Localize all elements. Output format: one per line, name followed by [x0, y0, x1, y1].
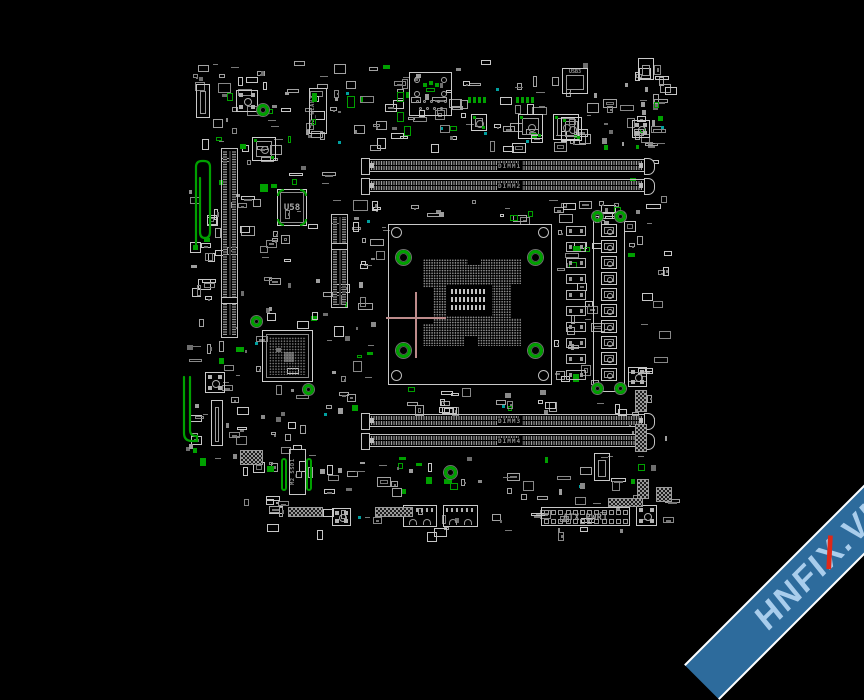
small-component	[201, 243, 211, 248]
pad	[239, 93, 243, 97]
small-component	[218, 83, 231, 94]
part	[274, 466, 276, 469]
small-component	[505, 393, 511, 398]
small-component	[284, 259, 290, 262]
cap-pad	[475, 305, 477, 310]
small-component	[244, 499, 249, 506]
small-component	[233, 454, 236, 459]
front-panel-header[interactable]	[375, 507, 413, 517]
part	[274, 435, 276, 437]
small-component	[654, 65, 661, 75]
small-component	[365, 517, 371, 518]
box-inner	[200, 91, 206, 114]
small-component	[472, 200, 476, 204]
part	[466, 84, 468, 86]
small-component	[266, 240, 277, 248]
part	[256, 465, 261, 469]
small-component	[266, 499, 274, 505]
small-component	[427, 213, 440, 217]
part	[244, 199, 252, 201]
small-component	[240, 226, 250, 232]
part	[627, 224, 633, 229]
small-component	[507, 401, 513, 409]
small-component	[439, 407, 450, 413]
small-component	[205, 296, 212, 299]
part	[196, 77, 198, 79]
small-component	[236, 375, 241, 376]
small-component	[267, 524, 279, 532]
vrm-mosfet	[566, 274, 586, 284]
small-component	[358, 516, 361, 519]
small-component	[193, 448, 197, 454]
pad-square	[628, 367, 647, 387]
cap-pad	[471, 305, 473, 310]
small-component	[370, 239, 384, 246]
ic-chip[interactable]	[518, 114, 543, 139]
small-component	[360, 297, 366, 307]
small-component	[587, 103, 599, 113]
small-component	[322, 183, 330, 184]
small-component	[469, 83, 481, 86]
small-component	[353, 361, 362, 372]
choke-coil	[607, 293, 613, 299]
small-component	[359, 282, 362, 287]
small-component	[559, 214, 573, 223]
small-component	[622, 142, 624, 146]
m2-ssd-slot[interactable]: M2_SSD1	[289, 449, 306, 495]
highlight-pads	[516, 97, 534, 103]
pin-col	[232, 151, 236, 335]
pcie-x4-slot[interactable]	[331, 214, 348, 308]
cap-pad	[483, 297, 485, 302]
connector-label: ATX PWR1	[542, 513, 629, 523]
slot-end	[370, 183, 374, 188]
vrm-mosfet	[566, 258, 586, 268]
part	[497, 127, 499, 129]
small-component	[245, 350, 248, 353]
pad	[335, 511, 339, 515]
small-component	[281, 235, 289, 244]
small-component	[484, 132, 487, 135]
small-component	[636, 145, 640, 149]
vrm-mount-hole	[592, 211, 603, 222]
vrm-outline[interactable]	[593, 212, 625, 392]
small-component	[631, 479, 635, 483]
small-component	[647, 223, 651, 224]
small-component	[334, 64, 346, 74]
highlight	[271, 184, 277, 188]
side-header[interactable]	[635, 424, 647, 452]
small-component	[552, 77, 560, 86]
small-component	[651, 465, 656, 470]
usb-port[interactable]	[443, 505, 478, 527]
vrm-mosfet	[566, 338, 586, 348]
vrm-choke[interactable]	[601, 336, 617, 349]
small-component	[238, 203, 247, 208]
bump	[449, 519, 457, 525]
pin-hole	[430, 100, 433, 103]
pad-square	[636, 505, 657, 526]
pad	[218, 375, 222, 379]
small-component	[327, 340, 332, 341]
dimm-slot-3[interactable]: DIMM3	[368, 414, 645, 427]
small-component	[557, 268, 564, 271]
pcie-x16-slot[interactable]	[221, 148, 238, 338]
small-component	[503, 146, 514, 152]
slot-end	[370, 438, 374, 443]
part	[276, 234, 278, 236]
cap-pad	[455, 297, 457, 302]
highlight	[193, 245, 198, 250]
small-component	[467, 457, 471, 460]
choke-coil	[607, 325, 613, 331]
mount-hole	[444, 466, 457, 479]
small-component	[261, 415, 265, 419]
small-component	[301, 166, 305, 170]
jack-hole	[441, 91, 447, 97]
small-component	[604, 123, 609, 125]
bga-core	[284, 352, 294, 362]
small-component	[190, 197, 199, 204]
slot-label: DIMM1	[497, 163, 522, 170]
small-component	[426, 477, 432, 484]
part	[269, 243, 274, 245]
ic-circle	[569, 126, 577, 134]
small-component	[335, 97, 337, 101]
small-component	[637, 236, 644, 244]
usb3-header[interactable]: USB3	[562, 68, 588, 94]
highlight	[404, 126, 411, 136]
small-component	[371, 258, 375, 260]
small-component	[451, 393, 459, 396]
dimm-slot-1[interactable]: DIMM1	[368, 159, 645, 172]
pin-notch	[511, 284, 521, 318]
highlight	[658, 116, 663, 121]
pin-hole	[440, 107, 443, 110]
small-component	[510, 215, 518, 220]
small-component	[273, 231, 278, 237]
small-component	[597, 403, 605, 404]
ic-chip[interactable]	[561, 117, 582, 141]
cap-pad	[459, 297, 461, 302]
small-component	[593, 503, 601, 504]
socket-screw-br	[538, 370, 549, 381]
small-component	[638, 464, 645, 471]
corner-mark	[520, 116, 523, 119]
small-component	[371, 322, 376, 327]
small-component	[203, 414, 208, 415]
slot-end	[370, 163, 374, 168]
small-component	[496, 400, 506, 406]
pad	[251, 105, 255, 109]
cap-pad	[467, 305, 469, 310]
m2-wlan-slot[interactable]: M2_WLAN1	[309, 88, 327, 134]
part	[666, 270, 668, 273]
part	[333, 110, 335, 112]
part	[666, 520, 671, 522]
small-component	[353, 222, 359, 231]
part	[650, 398, 652, 400]
vrm-choke[interactable]	[601, 352, 617, 365]
latch-right	[644, 178, 655, 195]
slot-label: DIMM4	[497, 438, 522, 445]
small-component	[215, 458, 222, 459]
vrm-mosfet	[566, 306, 586, 316]
small-component	[276, 502, 279, 504]
connector[interactable]	[594, 453, 610, 481]
small-component	[357, 355, 363, 359]
pad	[639, 508, 643, 512]
vrm-choke[interactable]	[601, 272, 617, 285]
small-component	[515, 105, 521, 114]
pin-hole	[419, 107, 422, 110]
highlighted-trace-bar	[184, 377, 197, 441]
small-component	[260, 184, 268, 191]
small-component	[264, 277, 271, 280]
small-component	[346, 488, 352, 491]
pad	[650, 508, 654, 512]
ic-chip[interactable]	[471, 114, 487, 131]
vrm-choke[interactable]	[601, 320, 617, 333]
part	[240, 430, 244, 432]
small-component	[332, 371, 336, 374]
part	[394, 484, 396, 486]
small-component	[587, 115, 592, 116]
jack-hole	[414, 77, 420, 83]
part	[418, 408, 421, 412]
small-component	[515, 87, 523, 88]
part	[464, 482, 466, 484]
small-component	[434, 528, 447, 536]
part	[414, 208, 416, 210]
small-component	[609, 130, 613, 134]
small-component	[236, 347, 244, 352]
cap-pad	[479, 289, 481, 294]
small-component	[202, 139, 209, 150]
choke-coil	[607, 373, 613, 379]
small-component	[397, 467, 399, 469]
pin-zigzag	[446, 508, 475, 512]
pad	[580, 277, 583, 281]
small-component	[408, 387, 414, 392]
small-component	[312, 312, 319, 320]
vrm-choke[interactable]	[601, 240, 617, 253]
part	[241, 206, 244, 208]
small-component	[599, 201, 604, 206]
small-component	[338, 408, 343, 414]
front-panel-header[interactable]	[288, 507, 323, 517]
small-component	[317, 530, 323, 540]
small-component	[461, 113, 466, 118]
highlight	[397, 112, 404, 122]
small-component	[345, 336, 350, 341]
corner-arc	[300, 219, 307, 226]
socket-mount-hole	[528, 250, 543, 265]
socket-screw-tl	[391, 227, 402, 238]
ic-circle	[261, 146, 269, 154]
pad	[569, 245, 572, 249]
small-component	[620, 105, 634, 111]
vrm-choke[interactable]	[601, 368, 617, 381]
choke-coil	[607, 261, 613, 267]
front-panel-header[interactable]	[608, 498, 643, 507]
small-component	[646, 204, 660, 209]
vrm-choke[interactable]	[601, 304, 617, 317]
part	[657, 68, 659, 72]
socket-mount-hole	[528, 343, 543, 358]
side-header[interactable]	[656, 487, 672, 502]
small-component	[645, 87, 647, 92]
highlight	[312, 93, 317, 102]
chip-u58[interactable]: U58	[277, 189, 307, 226]
small-component	[533, 76, 537, 87]
part	[397, 84, 403, 86]
small-component	[355, 130, 358, 134]
corner-arc	[277, 189, 284, 196]
small-component	[287, 89, 299, 93]
small-component	[193, 346, 201, 347]
small-component	[281, 412, 285, 416]
part	[582, 204, 589, 206]
small-component	[219, 141, 224, 142]
pad-square	[205, 372, 225, 393]
small-component	[323, 313, 329, 316]
pad	[239, 105, 243, 109]
corner-mark	[473, 116, 476, 119]
highlight	[426, 88, 435, 92]
corner-mark	[271, 156, 274, 159]
cap-pad	[467, 297, 469, 302]
corner-mark	[577, 136, 580, 139]
chip-label: U58	[278, 203, 306, 213]
pad	[580, 341, 583, 345]
small-component	[271, 126, 279, 127]
part	[606, 102, 614, 106]
cap-pad	[463, 305, 465, 310]
small-component	[456, 68, 461, 71]
dimm-slot-2[interactable]: DIMM2	[368, 179, 645, 192]
small-component	[409, 469, 413, 473]
small-component	[463, 81, 470, 85]
small-component	[528, 211, 533, 217]
small-component	[402, 489, 406, 494]
small-component	[620, 529, 623, 533]
small-component	[661, 126, 664, 129]
side-header[interactable]	[635, 390, 647, 412]
small-component	[300, 425, 306, 434]
small-component	[213, 64, 218, 65]
vrm-mosfet	[566, 370, 586, 380]
box-inner	[566, 75, 584, 90]
small-component	[213, 119, 223, 129]
vrm-choke[interactable]	[601, 288, 617, 301]
small-component	[198, 65, 210, 72]
small-component	[292, 179, 297, 186]
vrm-choke[interactable]	[601, 256, 617, 269]
small-component	[505, 208, 510, 209]
pin-hole	[426, 107, 429, 110]
small-component	[413, 117, 427, 123]
small-component	[373, 517, 382, 524]
part	[557, 210, 561, 212]
part	[234, 400, 237, 402]
pad	[208, 375, 212, 379]
small-component	[462, 388, 471, 397]
part	[668, 502, 677, 504]
connector[interactable]	[638, 58, 654, 80]
cap-pad	[479, 297, 481, 302]
small-component	[540, 390, 545, 395]
pad-square	[332, 508, 351, 526]
pad	[639, 519, 643, 523]
small-component	[241, 291, 245, 295]
small-component	[324, 413, 327, 416]
atx-power-connector[interactable]: ATX PWR1	[541, 507, 630, 526]
front-panel-header[interactable]	[240, 450, 263, 465]
part	[208, 299, 210, 301]
highlight-pads	[468, 97, 486, 103]
part	[580, 286, 583, 288]
pin-hole	[416, 100, 419, 103]
small-component	[372, 201, 377, 211]
latch-left	[361, 413, 370, 430]
audio-jack-connector[interactable]	[409, 72, 452, 116]
chipset-bga[interactable]	[262, 330, 313, 382]
corner-arc	[300, 189, 307, 196]
small-component	[240, 144, 246, 150]
vrm-choke[interactable]	[601, 224, 617, 237]
small-component	[263, 82, 267, 91]
small-component	[653, 301, 663, 308]
dimm-slot-4[interactable]: DIMM4	[368, 434, 645, 447]
key-notch	[332, 243, 347, 250]
part	[380, 480, 388, 484]
small-component	[322, 172, 336, 176]
center-hole	[638, 126, 646, 134]
small-component	[549, 200, 558, 201]
small-component	[368, 345, 374, 346]
small-component	[585, 319, 591, 320]
part	[561, 535, 563, 539]
small-component	[444, 479, 452, 485]
socket-screw-tr	[538, 227, 549, 238]
small-component	[353, 200, 368, 210]
ic-chip[interactable]	[252, 137, 276, 161]
small-component	[636, 210, 640, 214]
part	[327, 492, 332, 494]
boardview-canvas[interactable]: DIMM1DIMM2DIMM3DIMM4U58M2_WLAN1M2_SSD1AT…	[0, 0, 864, 608]
small-component	[496, 88, 499, 91]
part	[376, 127, 378, 129]
small-component	[219, 341, 224, 352]
small-component	[563, 203, 576, 209]
small-component	[500, 97, 512, 105]
part	[342, 395, 345, 397]
connector[interactable]	[196, 84, 210, 118]
pad	[569, 373, 572, 377]
cap-pad	[475, 289, 477, 294]
connector[interactable]	[211, 400, 223, 446]
small-component	[205, 253, 214, 261]
small-component	[554, 142, 568, 152]
pad	[569, 309, 572, 313]
pad	[569, 261, 572, 265]
small-component	[339, 392, 348, 396]
small-component	[557, 476, 571, 480]
small-component	[237, 427, 247, 430]
pad	[580, 373, 583, 377]
side-header[interactable]	[637, 479, 649, 499]
